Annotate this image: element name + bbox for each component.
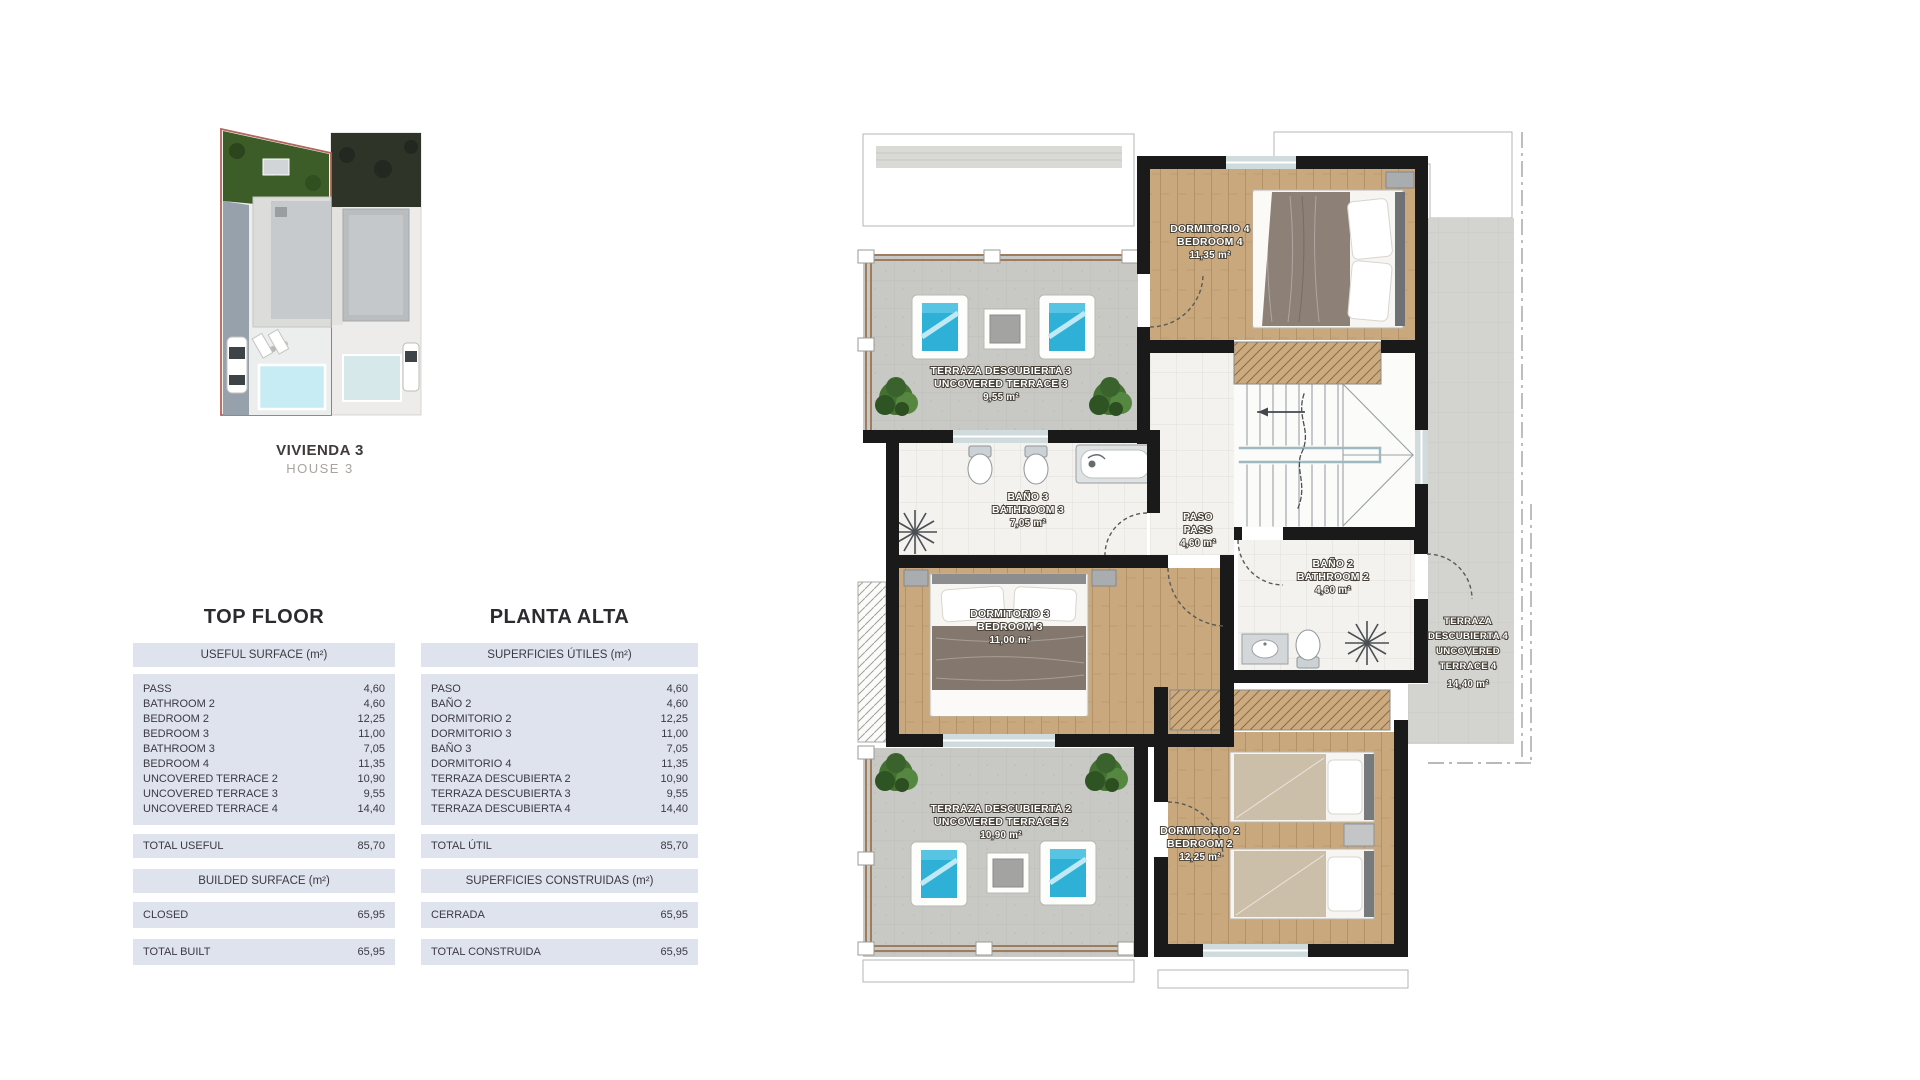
label-bedroom3-en: BEDROOM 3 xyxy=(977,622,1043,633)
thumbnail-label: VIVIENDA 3 HOUSE 3 xyxy=(215,442,425,476)
table-row: BEDROOM 411,35 xyxy=(143,757,385,772)
label-bathroom2-es: BAÑO 2 xyxy=(1312,557,1353,570)
label-terrace2-area: 10,90 m² xyxy=(980,830,1022,841)
louver-strip xyxy=(858,582,886,742)
built-surface-header-es: SUPERFICIES CONSTRUIDAS (m²) xyxy=(421,869,698,893)
table-row: UNCOVERED TERRACE 414,40 xyxy=(143,802,385,817)
label-bedroom3-es: DORMITORIO 3 xyxy=(970,609,1050,620)
label-bedroom2-area: 12,25 m² xyxy=(1179,852,1221,863)
surface-table-spanish: PLANTA ALTA SUPERFICIES ÚTILES (m²) PASO… xyxy=(421,606,698,965)
table-row: BATHROOM 37,05 xyxy=(143,742,385,757)
surface-table-english: TOP FLOOR USEFUL SURFACE (m²) PASS4,60 B… xyxy=(133,606,395,965)
table-row: UNCOVERED TERRACE 39,55 xyxy=(143,787,385,802)
label-bedroom4-es: DORMITORIO 4 xyxy=(1170,224,1250,235)
unit-subtitle: HOUSE 3 xyxy=(215,461,425,476)
label-bathroom3-en: BATHROOM 3 xyxy=(992,505,1064,516)
table-row: TERRAZA DESCUBIERTA 39,55 xyxy=(431,787,688,802)
useful-rows-es: PASO4,60 BAÑO 24,60 DORMITORIO 212,25 DO… xyxy=(421,674,698,825)
toilet-icon xyxy=(1296,630,1320,668)
table-row: DORMITORIO 411,35 xyxy=(431,757,688,772)
label-terrace4-l3: UNCOVERED xyxy=(1436,646,1500,657)
site-plan-thumbnail: VIVIENDA 3 HOUSE 3 xyxy=(215,103,425,476)
floor-plan: DORMITORIO 4 BEDROOM 4 11,35 m² TERRAZA … xyxy=(838,112,1538,1000)
table-row: PASO4,60 xyxy=(431,682,688,697)
useful-surface-header-en: USEFUL SURFACE (m²) xyxy=(133,643,395,667)
stair-void-balustrade xyxy=(1234,342,1381,384)
useful-surface-header-es: SUPERFICIES ÚTILES (m²) xyxy=(421,643,698,667)
bed-double-bedroom4 xyxy=(1253,172,1414,328)
label-paso-en: PASS xyxy=(1184,525,1213,536)
toilet-icon xyxy=(968,446,992,484)
highlighted-plot xyxy=(221,129,331,415)
table-row: BEDROOM 212,25 xyxy=(143,712,385,727)
label-terrace2-en: UNCOVERED TERRACE 2 xyxy=(934,817,1068,828)
table-row: TERRAZA DESCUBIERTA 210,90 xyxy=(431,772,688,787)
label-terrace4-l2: DESCUBIERTA 4 xyxy=(1428,631,1508,642)
useful-rows-en: PASS4,60 BATHROOM 24,60 BEDROOM 212,25 B… xyxy=(133,674,395,825)
label-bedroom3-area: 11,00 m² xyxy=(989,635,1031,646)
total-built-row-en: TOTAL BUILT65,95 xyxy=(133,939,395,965)
label-terrace4-l1: TERRAZA xyxy=(1444,616,1492,627)
label-paso-area: 4,60 m² xyxy=(1180,538,1216,549)
table-row: BAÑO 24,60 xyxy=(431,697,688,712)
table-row: BATHROOM 24,60 xyxy=(143,697,385,712)
site-plan-svg xyxy=(215,103,425,425)
label-bedroom2-en: BEDROOM 2 xyxy=(1167,839,1233,850)
table-row: DORMITORIO 212,25 xyxy=(431,712,688,727)
label-bathroom3-area: 7,05 m² xyxy=(1010,518,1046,529)
total-useful-row-es: TOTAL ÚTIL85,70 xyxy=(421,834,698,858)
page: { "project": { "unit_title": "VIVIENDA 3… xyxy=(0,0,1920,1080)
roof-outline-top-left xyxy=(863,134,1134,226)
table-row: TERRAZA DESCUBIERTA 414,40 xyxy=(431,802,688,817)
table-row: UNCOVERED TERRACE 210,90 xyxy=(143,772,385,787)
label-terrace4-l4: TERRACE 4 xyxy=(1439,661,1496,672)
closed-row-es: CERRADA65,95 xyxy=(421,902,698,928)
label-bathroom2-area: 4,60 m² xyxy=(1315,585,1351,596)
neighbour-plot xyxy=(331,133,421,415)
total-useful-row-en: TOTAL USEFUL85,70 xyxy=(133,834,395,858)
label-bedroom2-es: DORMITORIO 2 xyxy=(1160,826,1240,837)
label-bedroom4-area: 11,35 m² xyxy=(1189,250,1231,261)
void-balustrade-bedroom2 xyxy=(1170,690,1390,730)
built-surface-header-en: BUILDED SURFACE (m²) xyxy=(133,869,395,893)
label-terrace3-area: 9,55 m² xyxy=(983,392,1019,403)
unit-title: VIVIENDA 3 xyxy=(215,442,425,459)
label-paso-es: PASO xyxy=(1183,512,1213,523)
label-bathroom2-en: BATHROOM 2 xyxy=(1297,572,1369,583)
table-row: BAÑO 37,05 xyxy=(431,742,688,757)
label-terrace3-es: TERRAZA DESCUBIERTA 3 xyxy=(931,366,1072,377)
label-terrace3-en: UNCOVERED TERRACE 3 xyxy=(934,379,1068,390)
table-row: BEDROOM 311,00 xyxy=(143,727,385,742)
table-title-es: PLANTA ALTA xyxy=(421,606,698,629)
label-terrace4-area: 14,40 m² xyxy=(1447,679,1489,690)
closed-row-en: CLOSED65,95 xyxy=(133,902,395,928)
floor-plan-svg: DORMITORIO 4 BEDROOM 4 11,35 m² TERRAZA … xyxy=(838,112,1538,1000)
total-built-row-es: TOTAL CONSTRUIDA65,95 xyxy=(421,939,698,965)
label-bedroom4-en: BEDROOM 4 xyxy=(1177,237,1243,248)
table-title-en: TOP FLOOR xyxy=(133,606,395,629)
label-bathroom3-es: BAÑO 3 xyxy=(1007,490,1048,503)
label-terrace2-es: TERRAZA DESCUBIERTA 2 xyxy=(931,804,1072,815)
table-row: DORMITORIO 311,00 xyxy=(431,727,688,742)
toilet-icon xyxy=(1024,446,1048,484)
table-row: PASS4,60 xyxy=(143,682,385,697)
